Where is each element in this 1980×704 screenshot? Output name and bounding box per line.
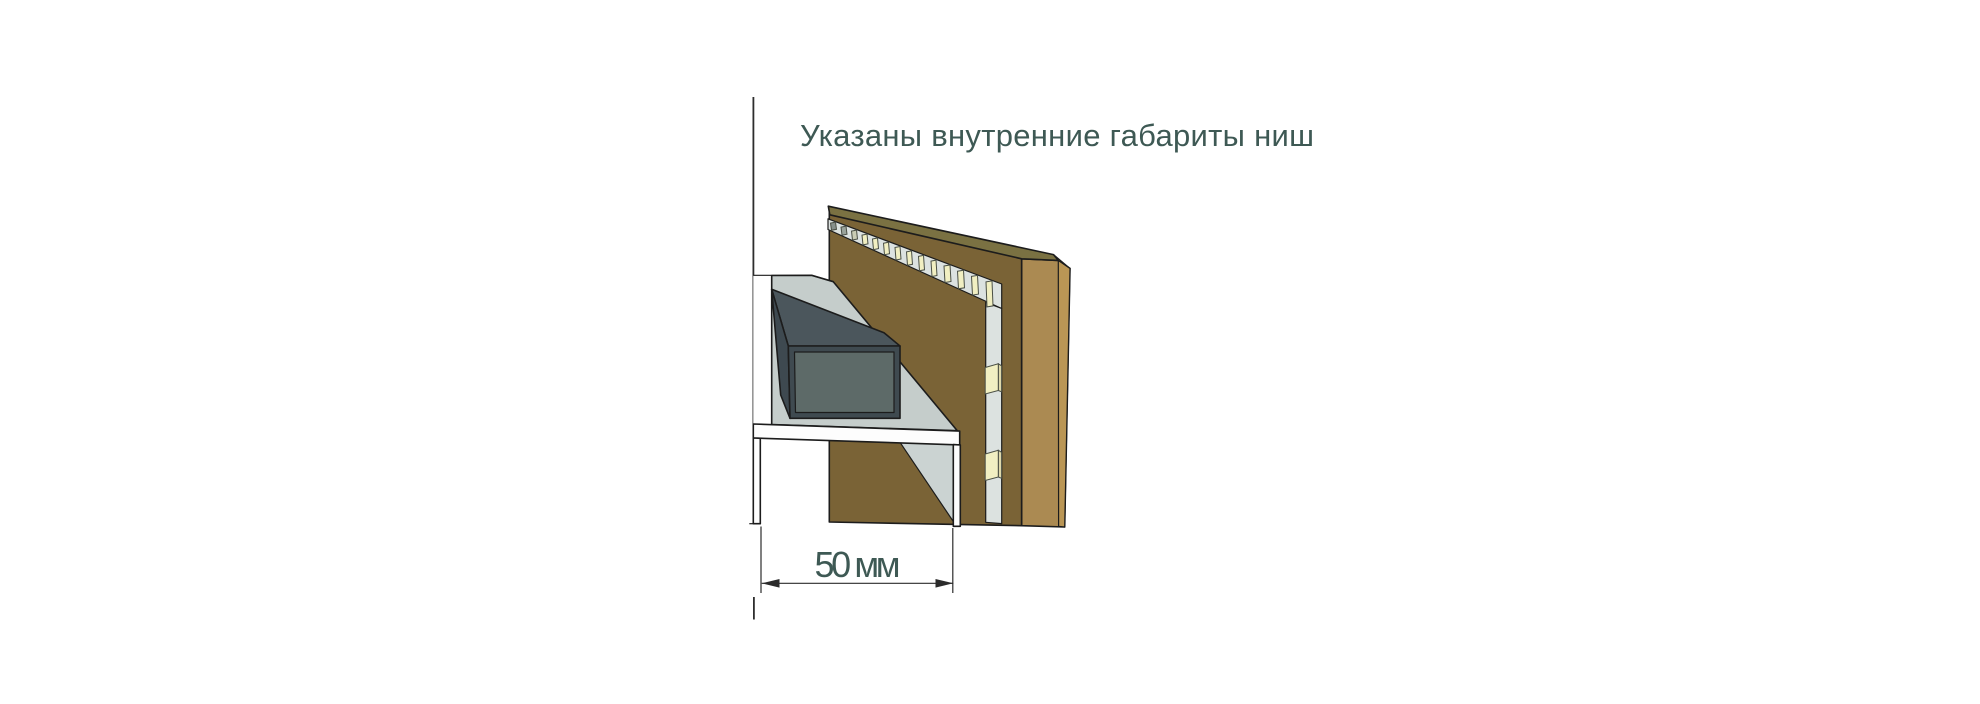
arrowhead-right-icon bbox=[936, 579, 954, 588]
led-block bbox=[985, 364, 1001, 394]
led-diode bbox=[944, 265, 951, 283]
led-diode bbox=[931, 260, 937, 276]
led-block bbox=[985, 450, 1001, 480]
led-diode bbox=[873, 238, 879, 250]
niche-dimension-illustration: 50 мм Указаны внутренние габариты ниш bbox=[0, 0, 1980, 704]
dimension-annotation: 50 мм bbox=[761, 527, 953, 594]
channel-left-wall bbox=[753, 438, 760, 524]
led-diode bbox=[895, 247, 901, 261]
led-diode bbox=[907, 251, 913, 265]
wall-sliver bbox=[753, 276, 771, 425]
led-diode bbox=[884, 242, 890, 255]
led-diode bbox=[972, 275, 979, 295]
arrowhead-left-icon bbox=[762, 579, 780, 588]
led-diode bbox=[958, 270, 965, 289]
led-diode bbox=[852, 230, 858, 240]
led-diode bbox=[862, 234, 868, 245]
led-diode bbox=[831, 222, 837, 230]
duct-front-opening bbox=[795, 352, 895, 413]
led-strip-vertical bbox=[986, 303, 1002, 524]
channel-right-wall bbox=[953, 445, 960, 527]
panel-edge-strip bbox=[1058, 260, 1070, 527]
led-diode bbox=[986, 281, 993, 307]
product-diagram-canvas: 50 мм Указаны внутренние габариты ниш bbox=[0, 0, 1980, 704]
led-diode bbox=[919, 255, 925, 270]
diagram-note: Указаны внутренние габариты ниш bbox=[800, 118, 1314, 153]
led-diode bbox=[841, 226, 847, 235]
dimension-value: 50 мм bbox=[815, 544, 901, 585]
